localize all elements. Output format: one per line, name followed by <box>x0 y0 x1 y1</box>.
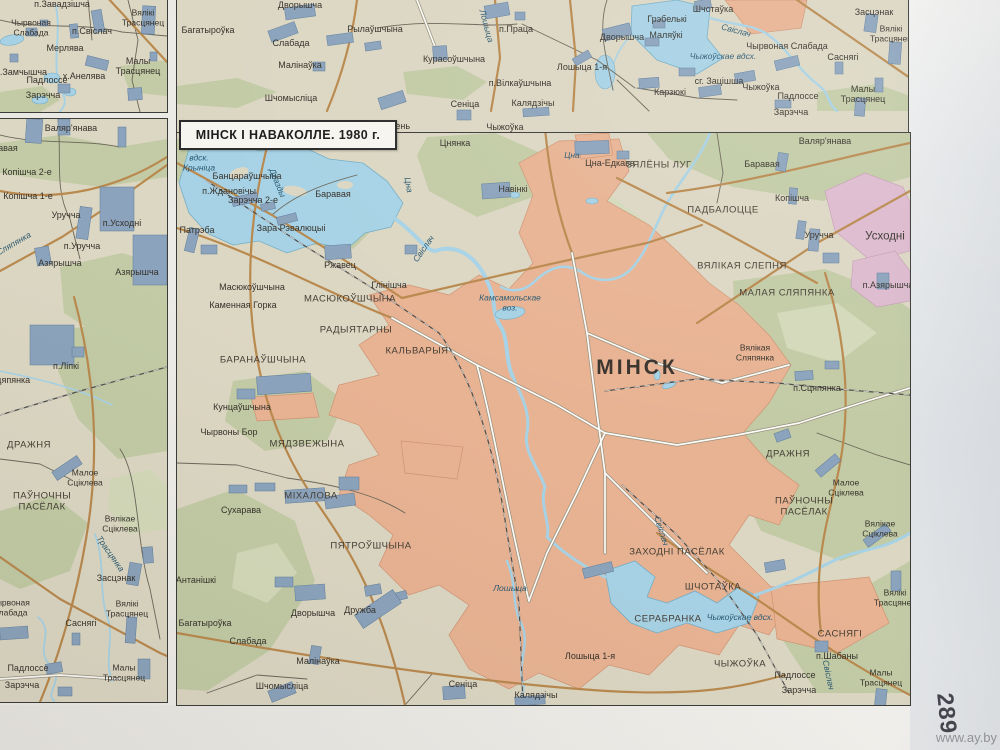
map-label: СЕРАБРАНКА <box>634 615 701 626</box>
map-label: Азярышча <box>115 267 158 277</box>
map-label: Малы Трасцянец <box>103 663 145 682</box>
map-label: МІНСК <box>596 356 677 380</box>
map-label: Маляўкі <box>649 30 682 40</box>
map-label: Свіслач <box>652 515 670 547</box>
map-title-box: МІНСК І НАВАКОЛЛЕ. 1980 г. <box>179 120 397 150</box>
map-panel-top-left: п.ЗавадзішчаЧырвоная СлабадаВялікі Трасц… <box>0 0 167 112</box>
map-label: Вялікі Трасцянец <box>122 8 164 27</box>
map-label: Дворышча <box>600 32 644 42</box>
map-label: Копішча 2-е <box>2 167 52 177</box>
map-label: Вялікае Сціклева <box>102 514 138 533</box>
map-label: ПЯТРОЎШЧЫНА <box>330 542 411 553</box>
map-label: Чыжоўка <box>742 82 779 92</box>
map-label: КАЛЬВАРЫЯ <box>385 347 448 358</box>
map-label: п.Шабаны <box>816 651 858 661</box>
map-label: Цна-Едкава <box>585 158 635 168</box>
map-label: Чыжоўскае вдсх. <box>690 52 757 62</box>
map-label: МЯДЗВЕЖЫНА <box>270 440 345 451</box>
map-label: ДРАЖНЯ <box>766 450 810 461</box>
map-label: Зарэчча <box>774 107 808 117</box>
map-label: Засцэнак <box>855 7 894 17</box>
map-label: Навінкі <box>498 184 527 194</box>
map-label: Лошыца 1-я <box>557 62 607 72</box>
map-label: ЗЯЛЁНЫ ЛУГ <box>626 161 691 172</box>
map-label: Вялікі Трасцянец <box>870 24 908 43</box>
map-label: п.Вілкаўшчына <box>489 78 552 88</box>
map-label: п.Азярышча <box>863 280 910 290</box>
map-label: Антанішкі <box>177 575 216 585</box>
map-label: Шчотаўка <box>693 4 733 14</box>
map-label: Чырвоная Слабада <box>746 41 827 51</box>
map-label: Слабада <box>273 38 310 48</box>
map-label: Падлоссе <box>777 91 818 101</box>
map-label: Азярышча <box>38 258 81 268</box>
map-label: Кунцаўшчына <box>213 402 271 412</box>
map-label: ДРАЖНЯ <box>7 441 51 452</box>
map-label: Карзюкі <box>654 87 686 97</box>
map-label: Багатыроўка <box>178 618 231 628</box>
map-labels-top-left: п.ЗавадзішчаЧырвоная СлабадаВялікі Трасц… <box>0 0 167 112</box>
map-label: Чырвоная Слабада <box>0 598 30 617</box>
map-label: Усходні <box>865 231 905 244</box>
map-label: Камсамольскае воз. <box>479 293 541 312</box>
map-label: Ржавец <box>324 260 356 270</box>
map-label: Валяр'янава <box>799 136 851 146</box>
map-label: п.Замчышча <box>0 67 47 77</box>
map-label: Слабада <box>230 636 267 646</box>
map-label: ЧЫЖОЎКА <box>714 660 766 671</box>
map-label: п.Ліпкі <box>53 361 79 371</box>
map-label: Чырвоная Слабада <box>11 18 51 37</box>
map-label: Засцэнак <box>97 573 136 583</box>
map-label: Баравая <box>744 159 779 169</box>
map-label: ШЧОТАЎКА <box>685 583 741 594</box>
watermark-text: www.ay.by <box>936 730 997 745</box>
map-label: Саснягі <box>65 618 96 628</box>
map-label: Сухарава <box>221 505 261 515</box>
map-label: Лошыца <box>493 584 527 594</box>
map-label: п.Завадзішча <box>34 0 90 9</box>
map-label: Зара Рэвалюцыі <box>257 223 326 233</box>
map-label: Баравая <box>315 189 350 199</box>
map-panel-minsk-main: Цнянкавдск. КрыніцаБанцараўшчынап.Жданов… <box>177 133 910 705</box>
map-label: Зарэчча <box>5 680 39 690</box>
map-label: Чырвоны Бор <box>200 427 257 437</box>
map-label: САСНЯГІ <box>818 630 863 641</box>
map-label: Дразды <box>267 167 287 198</box>
map-label: Малы Трасцянец <box>116 56 161 76</box>
map-label: Вялікі Трасцянец <box>106 599 148 618</box>
map-label: ЗАХОДНІ ПАСЁЛАК <box>629 548 725 559</box>
map-panel-top-strip: БагатыроўкаДворышчаРылаўшчынаСлабадаМалі… <box>177 0 908 133</box>
map-label: п.Сцяпянка <box>793 383 841 393</box>
map-label: Цна <box>402 176 414 193</box>
map-label: Свіслач <box>720 23 752 40</box>
map-label: Сеніца <box>451 99 480 109</box>
map-label: Вялікая Сляпянка <box>736 343 774 362</box>
map-label: Малое Сціклева <box>828 478 864 497</box>
map-label: МІХАЛОВА <box>284 492 337 503</box>
map-label: Шчомысліца <box>265 93 318 103</box>
map-label: п.Праца <box>499 24 533 34</box>
map-label: Грэбелькі <box>647 14 687 24</box>
map-label: Чыжоўскае вдсх. <box>707 613 774 623</box>
map-labels-top-strip: БагатыроўкаДворышчаРылаўшчынаСлабадаМалі… <box>177 0 908 133</box>
map-label: Малы Трасцянец <box>841 84 886 104</box>
map-labels-minsk-main: Цнянкавдск. КрыніцаБанцараўшчынап.Жданов… <box>177 133 910 705</box>
map-label: ПАЎНОЧНЫ ПАСЁЛАК <box>775 496 833 517</box>
map-label: Копішча <box>775 193 809 203</box>
map-label: Сцяпянка <box>0 375 30 385</box>
map-label: Уручча <box>51 210 80 220</box>
map-label: п.Уручча <box>64 241 100 251</box>
map-label: Лошыца <box>477 9 495 44</box>
map-label: сг. Зацішша <box>695 76 744 86</box>
map-label: Дворышча <box>291 608 335 618</box>
map-title: МІНСК І НАВАКОЛЛЕ. 1980 г. <box>196 128 380 142</box>
map-label: вдск. Крыніца <box>183 153 215 172</box>
map-label: Лошыца 1-я <box>565 651 615 661</box>
map-label: Рылаўшчына <box>347 24 403 34</box>
map-label: Банцараўшчына <box>213 171 282 181</box>
map-label: Курасоўшчына <box>423 54 485 64</box>
map-label: Сеніца <box>449 679 478 689</box>
map-label: Глінішча <box>371 280 407 290</box>
map-panel-left-column: Валяр'янаваБараваяКопішча 2-еКопішча 1-е… <box>0 119 167 702</box>
map-label: Шчомысліца <box>256 681 309 691</box>
map-label: Каменная Горка <box>209 300 276 310</box>
map-label: Трасцянка <box>94 534 126 573</box>
map-label: Свіслач <box>820 659 836 690</box>
map-label: Цнянка <box>440 138 471 148</box>
map-label: РАДЫЯТАРНЫ <box>320 326 393 337</box>
map-label: МАЛАЯ СЛЯПЯНКА <box>739 289 835 300</box>
map-label: ПАЎНОЧНЫ ПАСЁЛАК <box>13 491 71 512</box>
paper-margin-right <box>910 0 1000 750</box>
map-label: ВЯЛІКАЯ СЛЕПНЯ <box>697 262 787 273</box>
map-label: Зарэчча <box>26 90 60 100</box>
map-label: Дворышча <box>278 0 322 10</box>
map-label: БАРАНАЎШЧЫНА <box>220 356 306 367</box>
map-label: Уручча <box>804 230 833 240</box>
page-number: 289 <box>931 692 962 736</box>
map-label: Чыжоўка <box>486 122 523 132</box>
map-label: Падлоссе <box>774 670 815 680</box>
map-label: Саснягі <box>827 52 858 62</box>
map-label: Вялікі Трасцянец <box>874 588 910 607</box>
map-label: Вялікае Сціклева <box>862 519 898 538</box>
map-label: Зарэчча 2-е <box>228 195 278 205</box>
map-label: х.Анелява <box>63 71 106 81</box>
map-label: Цна <box>564 151 580 161</box>
map-label: Валяр'янава <box>45 123 97 133</box>
map-label: Зарэчча <box>782 685 816 695</box>
map-label: МАСЮКОЎШЧЫНА <box>304 295 396 306</box>
map-label: Падлоссе <box>7 663 48 673</box>
map-label: Баравая <box>0 143 18 153</box>
map-label: Багатыроўка <box>181 25 234 35</box>
paper-margin-bottom <box>0 705 910 750</box>
map-label: Мерлява <box>46 43 83 53</box>
map-label: Малінаўка <box>296 656 339 666</box>
map-label: Малое Сціклева <box>67 468 103 487</box>
map-label: Масюкоўшчына <box>219 282 285 292</box>
map-label: Падлоссе <box>26 75 67 85</box>
map-label: п.Свіслач <box>72 26 112 36</box>
map-label: Малінаўка <box>278 60 321 70</box>
map-label: Малы Трасцянец <box>860 668 902 687</box>
map-label: Дружба <box>344 605 376 615</box>
map-label: Калядзічы <box>512 98 555 108</box>
map-labels-left-column: Валяр'янаваБараваяКопішча 2-еКопішча 1-е… <box>0 119 167 702</box>
map-label: Патрэба <box>180 225 215 235</box>
map-label: ПАДБАЛОЦЦЕ <box>687 206 759 217</box>
map-label: п.Усходні <box>103 218 141 228</box>
map-label: Свіслач <box>411 234 436 264</box>
atlas-page-photo: п.ЗавадзішчаЧырвоная СлабадаВялікі Трасц… <box>0 0 1000 750</box>
map-label: п.Ждановічы <box>202 186 256 196</box>
map-label: Копішча 1-е <box>3 191 53 201</box>
map-label: Калядзічы <box>515 690 558 700</box>
map-label: Сляпянка <box>0 230 33 257</box>
